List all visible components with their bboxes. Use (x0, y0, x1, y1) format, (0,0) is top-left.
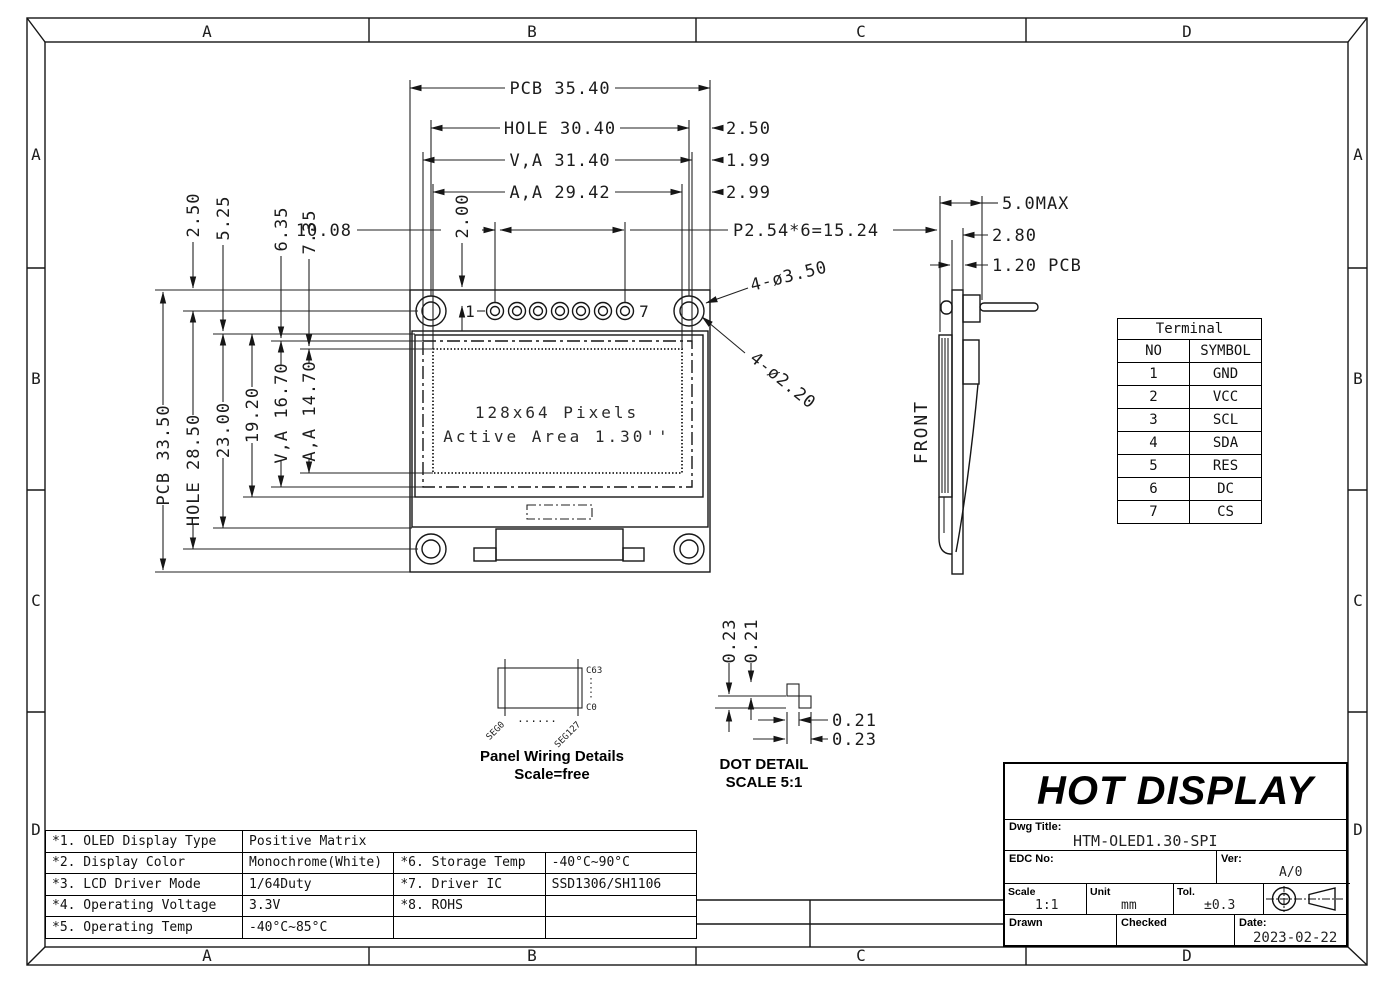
zone-letter-bottom: A (202, 946, 212, 965)
panel-wiring-title: Panel Wiring Details (480, 748, 624, 765)
zone-letter-top: D (1182, 22, 1192, 41)
zone-letter-bottom: B (527, 946, 537, 965)
terminal-symbol: GND (1190, 363, 1262, 386)
unit-cell: Unit mm (1087, 884, 1174, 915)
spec-value: -40°C~90°C (545, 852, 696, 874)
dot-pixel-1 (787, 684, 799, 696)
table-row: 7CS (1118, 501, 1262, 524)
dim-side-total: 5.0MAX (1002, 194, 1069, 214)
ver-label: Ver: (1221, 853, 1242, 865)
table-row: Terminal (1118, 319, 1262, 340)
side-connector (963, 340, 979, 384)
terminal-no: 6 (1118, 478, 1190, 501)
dim-side-pcb: 1.20 PCB (992, 256, 1082, 276)
spec-value: 3.3V (243, 895, 394, 917)
display-size-text: 128x64 Pixels (475, 403, 639, 422)
spec-value: Positive Matrix (243, 831, 697, 853)
terminal-symbol: SCL (1190, 409, 1262, 432)
terminal-symbol: CS (1190, 501, 1262, 524)
zone-letter-bottom: D (1182, 946, 1192, 965)
table-row: *1. OLED Display Type Positive Matrix (46, 831, 697, 853)
dwg-title-label: Dwg Title: (1009, 821, 1061, 833)
wiring-col-top-label: C63 (586, 666, 602, 676)
scale-cell: Scale 1:1 (1005, 884, 1087, 915)
dot-dim-h-inner: 0.21 (832, 711, 877, 731)
dim-aa-height: A,A 14.70 (300, 360, 320, 461)
callout-hole-outer: 4-ø3.50 (748, 257, 829, 295)
dwg-title-row: Dwg Title: HTM-OLED1.30-SPI (1005, 819, 1346, 851)
spec-label: *6. Storage Temp (394, 852, 545, 874)
table-row: NO SYMBOL (1118, 340, 1262, 363)
company-logo-text: HOT DISPLAY (1005, 764, 1346, 820)
edc-no-cell: EDC No: (1005, 851, 1217, 884)
drawn-cell: Drawn (1005, 915, 1117, 947)
dim-top-to-va: 6.35 (272, 207, 292, 252)
zone-letter-right: D (1353, 820, 1363, 839)
dim-pcb-height: PCB 33.50 (154, 404, 174, 505)
terminal-symbol: VCC (1190, 386, 1262, 409)
table-row: *5. Operating Temp -40°C~85°C (46, 917, 697, 939)
ver-value: A/0 (1279, 865, 1302, 880)
zone-letter-left: D (31, 820, 41, 839)
active-area-text: Active Area 1.30'' (443, 427, 670, 446)
dwg-title-value: HTM-OLED1.30-SPI (1073, 832, 1218, 850)
spec-label (394, 917, 545, 939)
table-row: 6DC (1118, 478, 1262, 501)
side-flex-cable (956, 384, 978, 552)
dim-edge-to-aa: 2.99 (726, 183, 771, 203)
pin-holes (487, 303, 634, 320)
zone-letter-top: A (202, 22, 212, 41)
spec-label: *8. ROHS (394, 895, 545, 917)
tol-cell: Tol. ±0.3 (1174, 884, 1264, 915)
tol-label: Tol. (1177, 886, 1195, 898)
dim-hole-width: HOLE 30.40 (504, 119, 616, 139)
wiring-seg-last-label: SEG127 (553, 720, 583, 750)
terminal-no: 5 (1118, 455, 1190, 478)
dim-aa-width: A,A 29.42 (509, 183, 610, 203)
edc-no-label: EDC No: (1009, 853, 1054, 865)
spec-label: *2. Display Color (46, 852, 243, 874)
date-value: 2023-02-22 (1253, 930, 1337, 946)
spec-value: -40°C~85°C (243, 917, 394, 939)
date-cell: Date: 2023-02-22 (1235, 915, 1350, 947)
zone-letter-left: A (31, 145, 41, 164)
dim-pcb-width: PCB 35.40 (509, 79, 610, 99)
table-row: 3SCL (1118, 409, 1262, 432)
spec-value (545, 895, 696, 917)
dim-top-to-glass: 5.25 (214, 196, 234, 241)
side-view: FRONT (911, 290, 1038, 574)
zone-letter-bottom: C (856, 946, 866, 965)
terminal-no: 2 (1118, 386, 1190, 409)
terminal-no: 7 (1118, 501, 1190, 524)
dot-detail-title: DOT DETAIL (720, 756, 809, 773)
drawing-sheet: A B C D A B C D A B C D A B C D 128x64 P… (0, 0, 1400, 990)
dot-detail: 0.23 0.21 0.21 0.23 DOT DETAIL SCALE 5:1 (715, 619, 877, 791)
table-row: 4SDA (1118, 432, 1262, 455)
checked-cell: Checked (1117, 915, 1235, 947)
callout-hole-inner: 4-ø2.20 (746, 348, 820, 413)
dim-side-header: 2.80 (992, 226, 1037, 246)
pin-1-label: 1 (465, 302, 475, 321)
date-label: Date: (1239, 917, 1267, 929)
table-row: *4. Operating Voltage 3.3V *8. ROHS (46, 895, 697, 917)
terminal-no: 1 (1118, 363, 1190, 386)
spec-value (545, 917, 696, 939)
zone-letter-top: C (856, 22, 866, 41)
dot-dim-h-outer: 0.23 (832, 730, 877, 750)
terminal-table-title: Terminal (1118, 319, 1262, 340)
dim-top-to-aa: 7.35 (300, 210, 320, 255)
panel-wiring-detail: C63 C0 SEG0 ...... SEG127 Panel Wiring D… (480, 659, 624, 783)
front-view-dimensions: PCB 35.40 HOLE 30.40 2.50 V,A 31.40 1.99… (154, 79, 937, 572)
spec-value: SSD1306/SH1106 (545, 874, 696, 896)
tol-value: ±0.3 (1204, 898, 1235, 913)
unit-value: mm (1121, 898, 1137, 913)
zone-letter-top: B (527, 22, 537, 41)
side-header-block (963, 295, 980, 322)
third-angle-projection-icon (1264, 884, 1346, 913)
dim-edge-to-hole: 2.50 (726, 119, 771, 139)
panel-wiring-subtitle: Scale=free (514, 766, 589, 783)
dim-va-width: V,A 31.40 (509, 151, 610, 171)
scale-value: 1:1 (1035, 898, 1058, 913)
scale-label: Scale (1008, 886, 1035, 898)
side-view-label: FRONT (911, 400, 932, 464)
spec-label: *1. OLED Display Type (46, 831, 243, 853)
spec-table: *1. OLED Display Type Positive Matrix *2… (45, 830, 697, 939)
dim-hole-height: HOLE 28.50 (184, 414, 204, 526)
table-row: 1GND (1118, 363, 1262, 386)
wiring-col-bottom-label: C0 (586, 703, 597, 713)
side-pcb (952, 290, 963, 574)
pin-7-label: 7 (639, 302, 649, 321)
wiring-seg-gap: ...... (517, 712, 557, 725)
bottom-strip-grid (697, 900, 1003, 947)
ver-cell: Ver: A/0 (1217, 851, 1350, 884)
spec-value: Monochrome(White) (243, 852, 394, 874)
table-row: *2. Display Color Monochrome(White) *6. … (46, 852, 697, 874)
dim-glass-height: 19.20 (243, 387, 263, 443)
spec-label: *3. LCD Driver Mode (46, 874, 243, 896)
zone-letter-left: C (31, 591, 41, 610)
projection-symbol-cell (1264, 884, 1346, 915)
dot-pixel-2 (799, 696, 811, 708)
hidden-connector-outline (527, 505, 592, 519)
dim-glass-to-bottom: 23.00 (214, 402, 234, 458)
terminal-symbol: RES (1190, 455, 1262, 478)
dim-pin-pitch: P2.54*6=15.24 (733, 221, 879, 241)
terminal-table: Terminal NO SYMBOL 1GND 2VCC 3SCL 4SDA 5… (1117, 318, 1262, 524)
terminal-symbol: SDA (1190, 432, 1262, 455)
wiring-seg-first-label: SEG0 (485, 720, 507, 742)
dim-va-height: V,A 16.70 (272, 362, 292, 463)
terminal-no: 4 (1118, 432, 1190, 455)
dot-dim-v-inner: 0.21 (742, 619, 762, 664)
dim-edge-to-va: 1.99 (726, 151, 771, 171)
terminal-col-no: NO (1118, 340, 1190, 363)
terminal-no: 3 (1118, 409, 1190, 432)
bottom-connector (474, 529, 644, 561)
zone-letter-right: C (1353, 591, 1363, 610)
title-block: HOT DISPLAY Dwg Title: HTM-OLED1.30-SPI … (1003, 762, 1348, 947)
zone-letter-right: B (1353, 369, 1363, 388)
spec-label: *4. Operating Voltage (46, 895, 243, 917)
dim-top-to-hole: 2.50 (184, 193, 204, 238)
front-view-module: 128x64 Pixels Active Area 1.30'' 1 7 (410, 290, 710, 572)
terminal-symbol: DC (1190, 478, 1262, 501)
spec-label: *5. Operating Temp (46, 917, 243, 939)
table-row: *3. LCD Driver Mode 1/64Duty *7. Driver … (46, 874, 697, 896)
table-row: 5RES (1118, 455, 1262, 478)
dim-pin-row: 2.00 (453, 194, 473, 239)
side-pin-nub (941, 301, 952, 314)
dot-dim-v-outer: 0.23 (720, 619, 740, 664)
terminal-col-symbol: SYMBOL (1190, 340, 1262, 363)
table-row: 2VCC (1118, 386, 1262, 409)
spec-value: 1/64Duty (243, 874, 394, 896)
checked-label: Checked (1121, 917, 1167, 929)
zone-letter-left: B (31, 369, 41, 388)
spec-label: *7. Driver IC (394, 874, 545, 896)
drawn-label: Drawn (1009, 917, 1043, 929)
zone-letter-right: A (1353, 145, 1363, 164)
unit-label: Unit (1090, 886, 1110, 898)
side-pin (980, 303, 1038, 311)
dot-detail-subtitle: SCALE 5:1 (726, 774, 803, 791)
